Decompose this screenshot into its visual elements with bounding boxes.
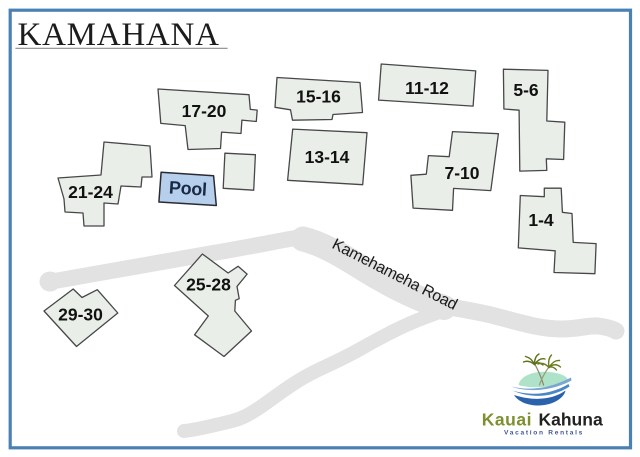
svg-text:1-4: 1-4 (528, 210, 554, 230)
svg-text:7-10: 7-10 (444, 163, 479, 183)
svg-text:15-16: 15-16 (296, 87, 341, 107)
svg-text:17-20: 17-20 (182, 101, 227, 121)
svg-text:25-28: 25-28 (186, 275, 231, 295)
svg-text:5-6: 5-6 (513, 80, 539, 100)
svg-text:29-30: 29-30 (58, 304, 103, 324)
svg-text:11-12: 11-12 (405, 78, 449, 98)
svg-text:Kauai: Kauai (482, 410, 532, 430)
svg-text:Pool: Pool (168, 177, 207, 199)
svg-text:Kahuna: Kahuna (539, 410, 603, 430)
svg-text:13-14: 13-14 (305, 147, 350, 167)
svg-text:KAMAHANA: KAMAHANA (18, 17, 220, 53)
svg-text:Vacation Rentals: Vacation Rentals (504, 429, 584, 436)
svg-text:21-24: 21-24 (68, 182, 113, 202)
